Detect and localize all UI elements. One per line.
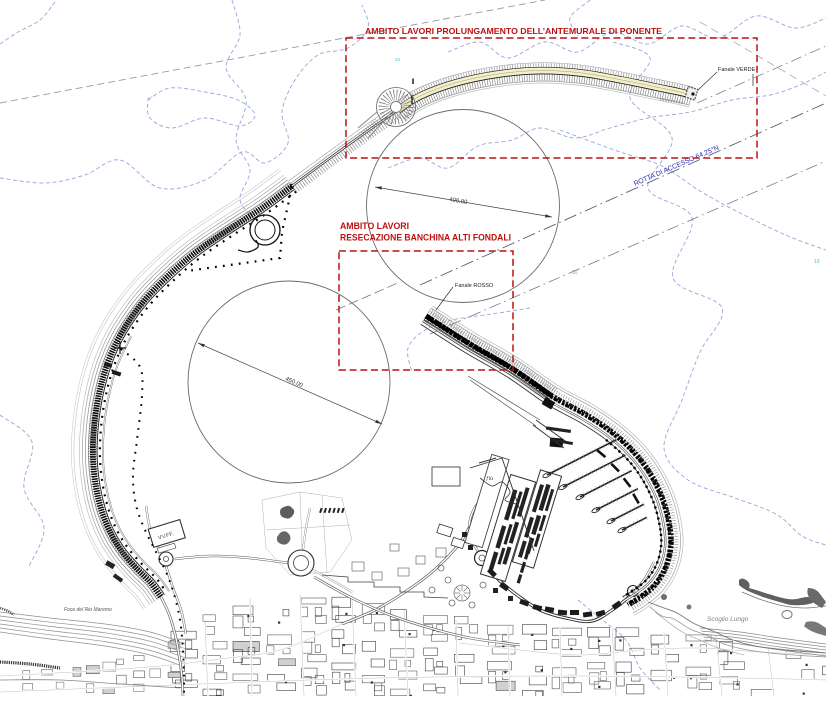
svg-text:Foce del Rio Maremo: Foce del Rio Maremo — [64, 607, 112, 613]
svg-text:10: 10 — [814, 259, 820, 265]
svg-text:RESECAZIONE BANCHINA ALTI FOND: RESECAZIONE BANCHINA ALTI FONDALI — [340, 233, 511, 243]
svg-text:AMBITO LAVORI: AMBITO LAVORI — [340, 221, 409, 231]
svg-text:Fanale VERDE: Fanale VERDE — [718, 67, 756, 73]
svg-text:AMBITO LAVORI PROLUNGAMENTO DE: AMBITO LAVORI PROLUNGAMENTO DELL’ANTEMUR… — [365, 26, 662, 36]
svg-text:Fanale ROSSO: Fanale ROSSO — [455, 283, 494, 289]
svg-text:ƒìù: ƒìù — [486, 476, 493, 482]
svg-text:Scoglio Lungo: Scoglio Lungo — [707, 616, 749, 623]
svg-text:25: 25 — [395, 57, 401, 62]
